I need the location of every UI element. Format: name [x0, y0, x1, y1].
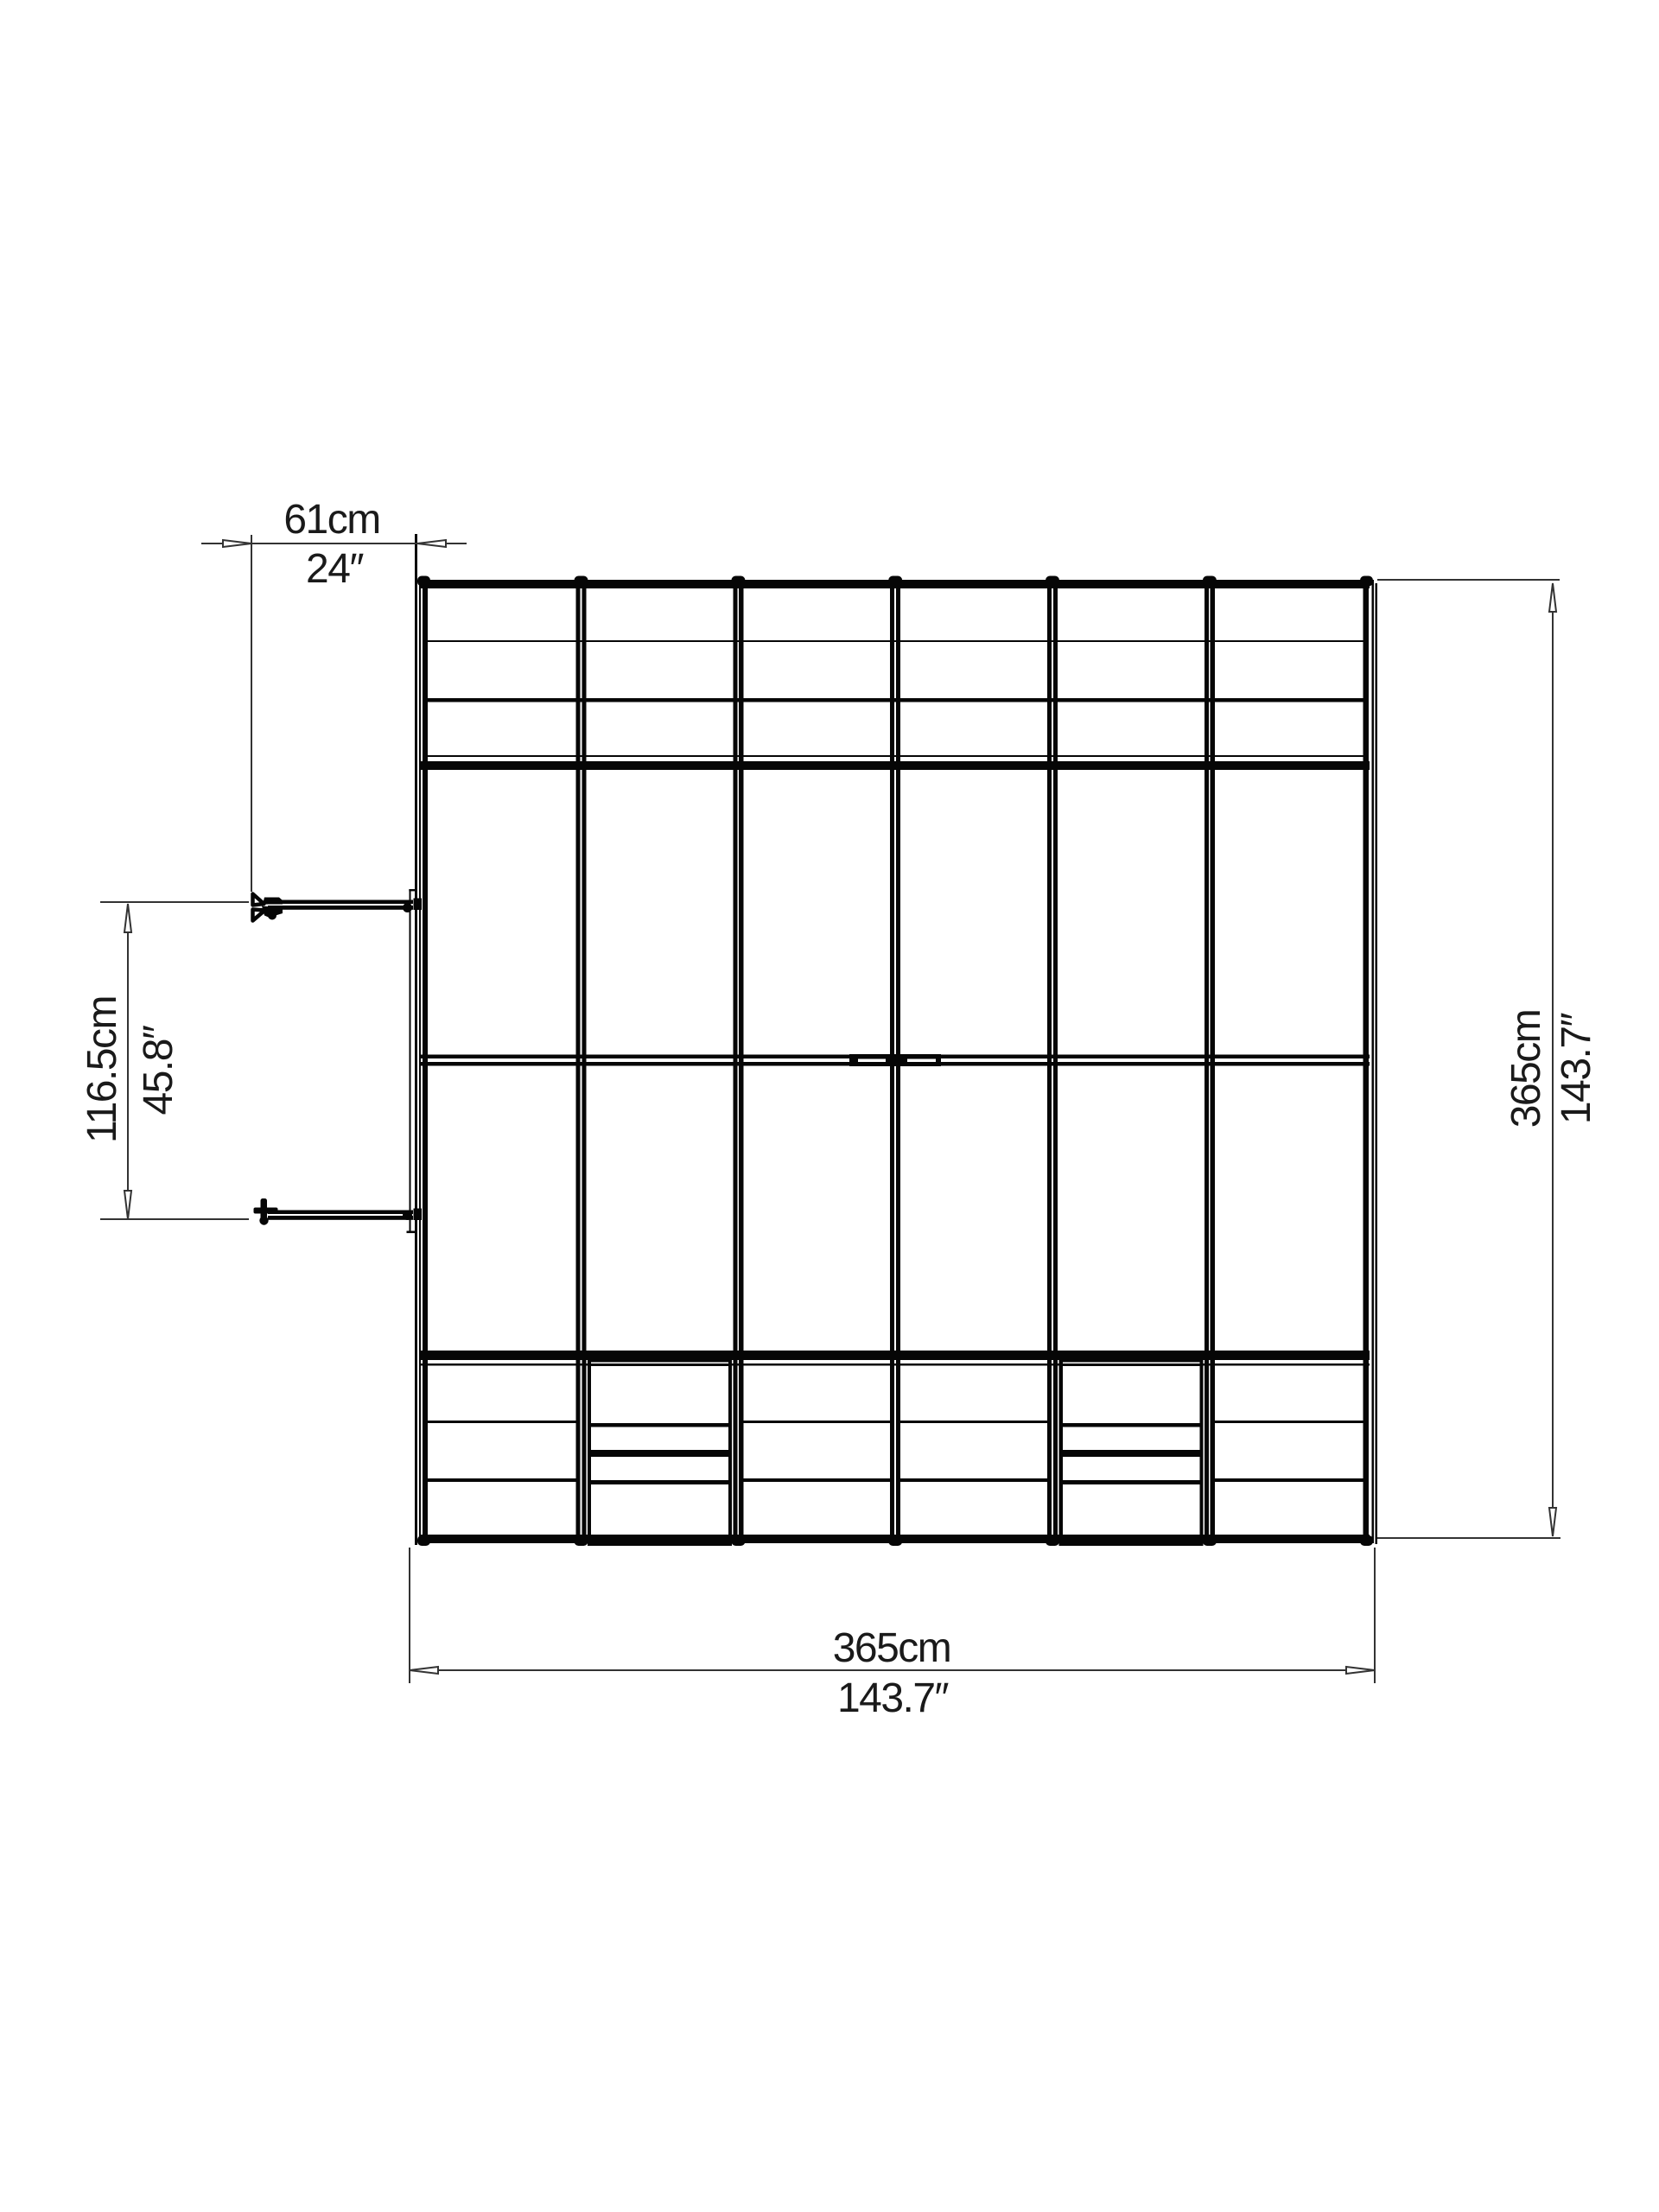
- svg-text:24″: 24″: [306, 546, 364, 592]
- svg-text:61cm: 61cm: [283, 497, 379, 543]
- svg-text:365cm: 365cm: [833, 1625, 951, 1671]
- svg-text:143.7″: 143.7″: [1554, 1012, 1599, 1124]
- svg-text:365cm: 365cm: [1503, 1010, 1549, 1128]
- svg-text:45.8″: 45.8″: [136, 1025, 181, 1115]
- svg-text:143.7″: 143.7″: [837, 1675, 950, 1721]
- svg-text:116.5cm: 116.5cm: [79, 996, 125, 1143]
